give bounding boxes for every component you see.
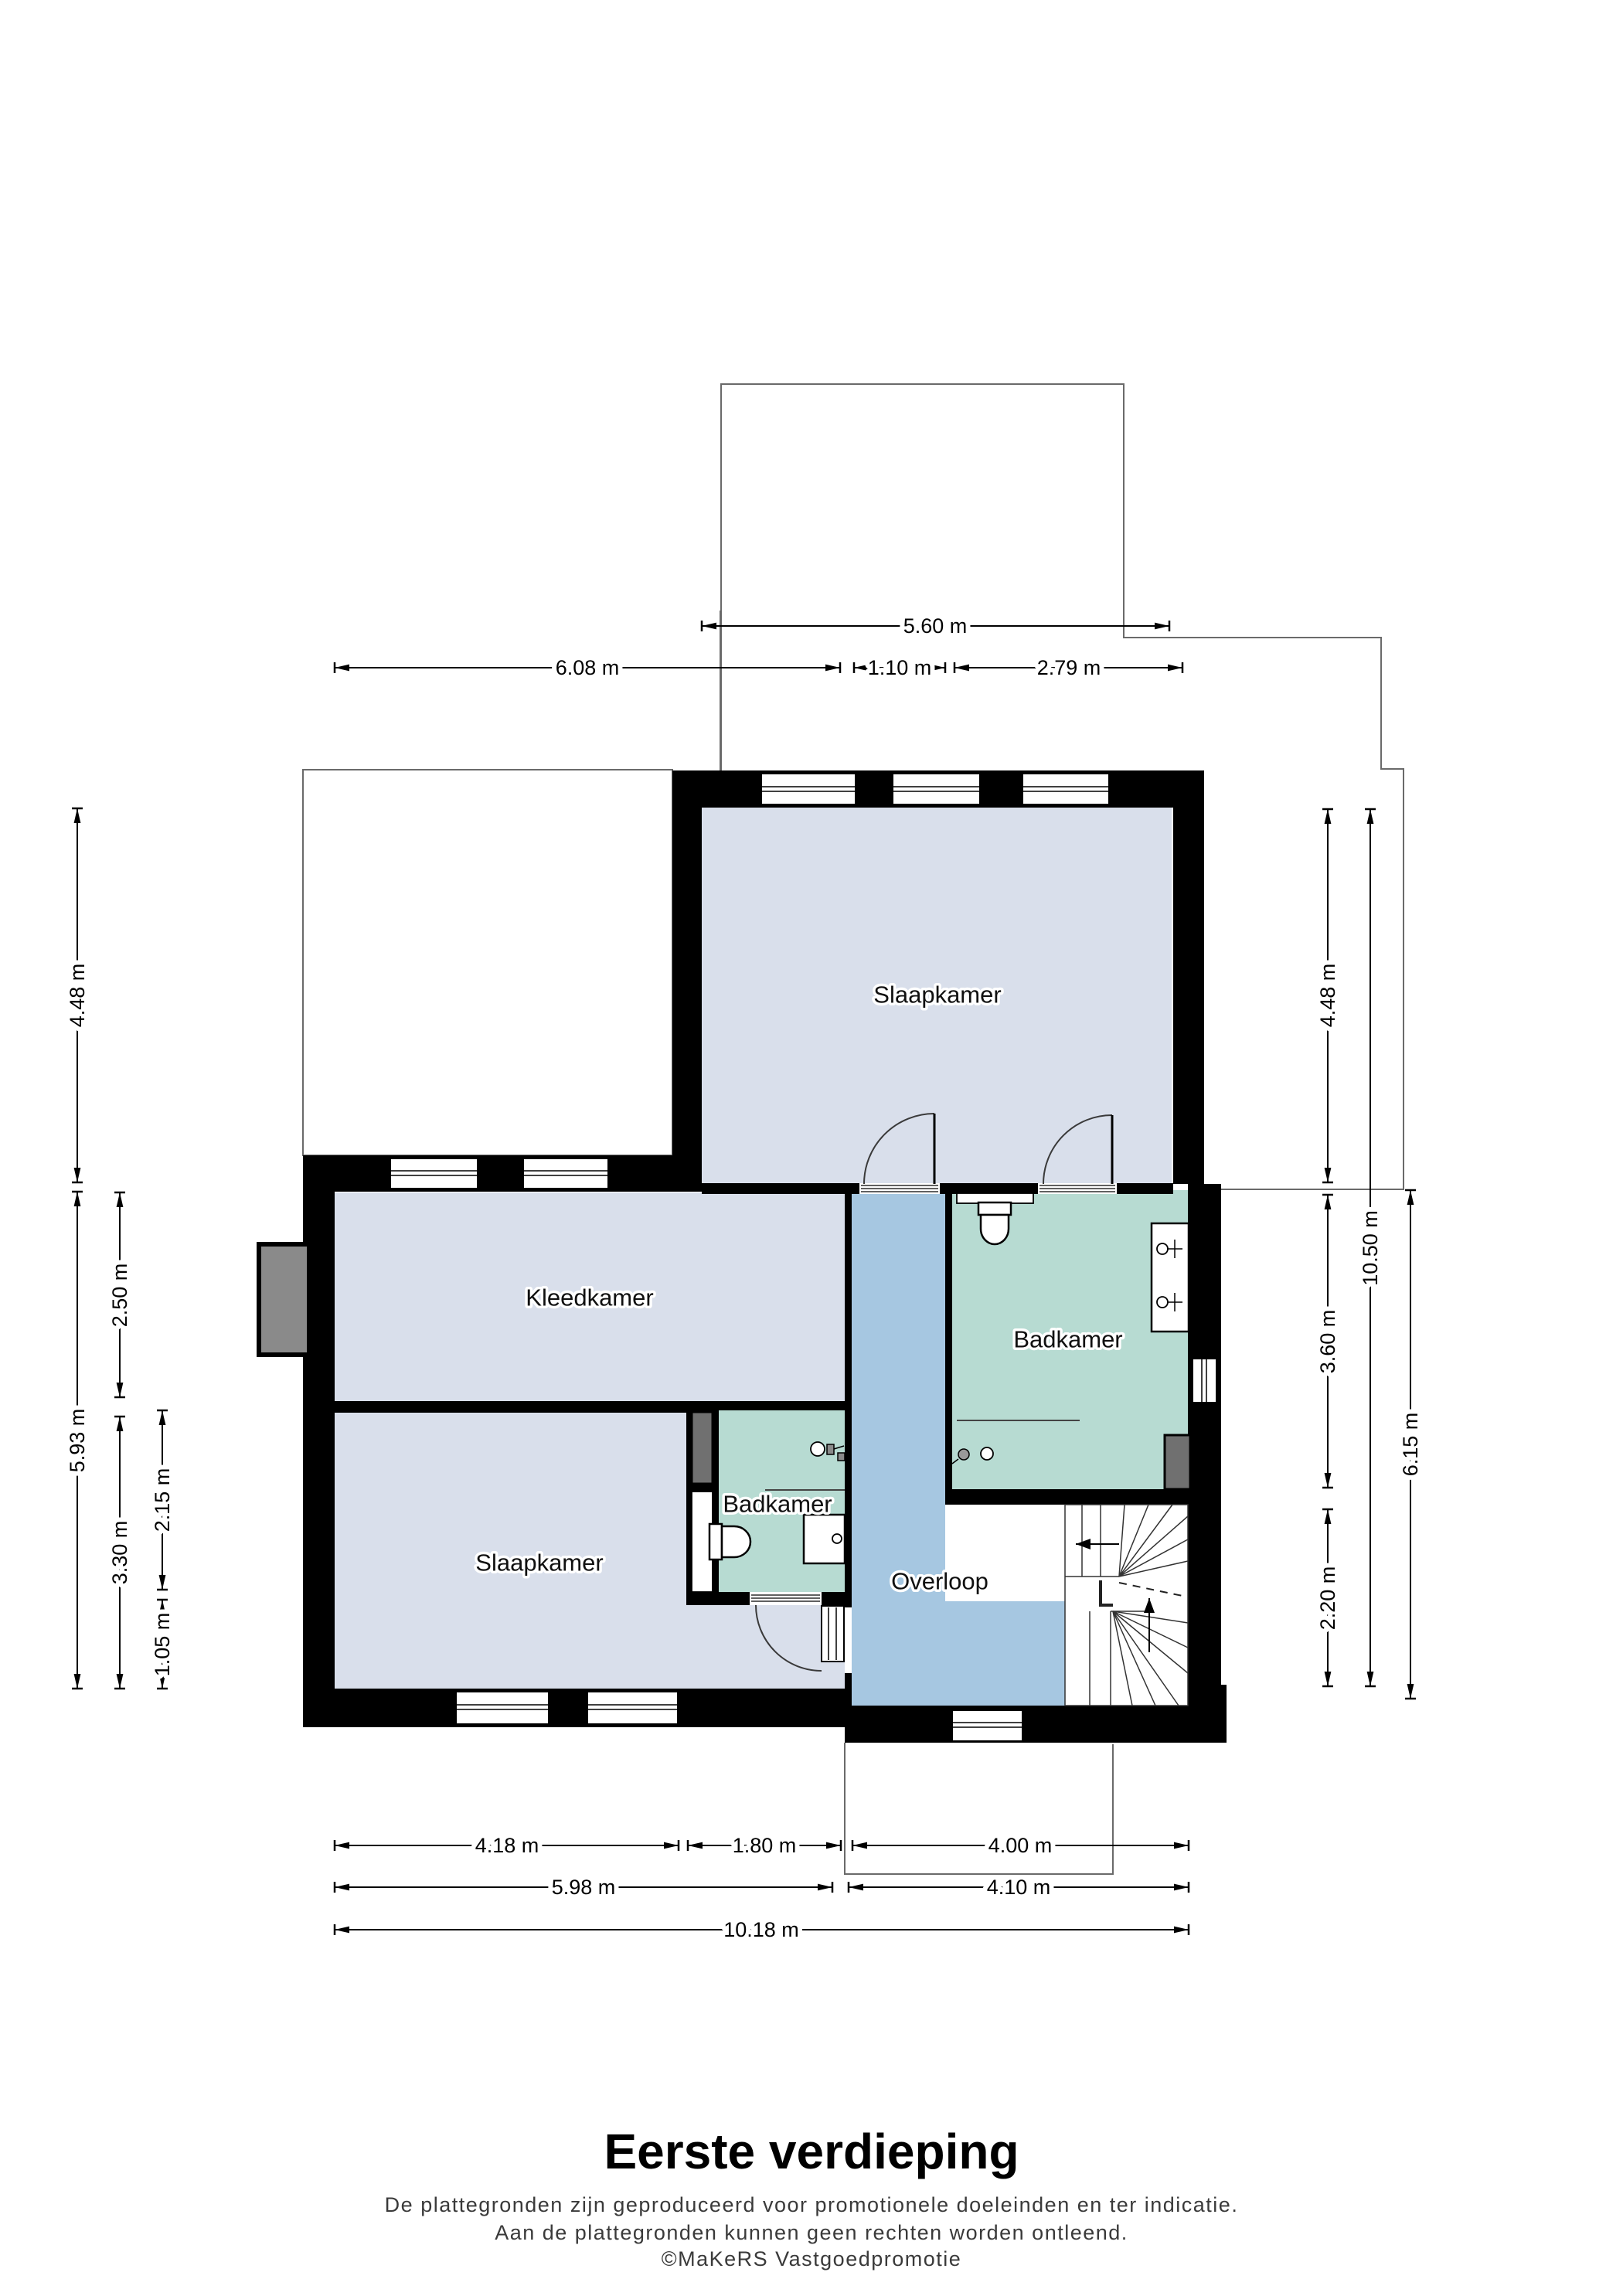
floorplan-drawing: 5.60 m 6.08 m 1.10 m 2.79 m 4.48 m 5.93 … <box>0 0 1623 2296</box>
dim-label: 5.60 m <box>903 614 968 638</box>
roof-void-outline <box>303 770 672 1155</box>
dim-label: 6.08 m <box>556 656 620 679</box>
window-icon <box>1022 774 1109 804</box>
dim-label: 4.00 m <box>988 1834 1053 1857</box>
window-icon <box>587 1692 678 1724</box>
dim-label: 10.50 m <box>1359 1210 1382 1286</box>
room-fills <box>335 808 1188 1708</box>
dimensions-bottom: 4.18 m 1.80 m 4.00 m 5.98 m 4.10 m 10.18… <box>335 1834 1189 1941</box>
window-icon <box>1193 1359 1216 1403</box>
dim-label: 4.18 m <box>475 1834 539 1857</box>
door-sill <box>1038 1183 1117 1194</box>
disclaimer-line-1: De plattegronden zijn geproduceerd voor … <box>385 2193 1239 2216</box>
dim-label: 4.48 m <box>66 964 89 1028</box>
dim-label: 1.10 m <box>868 656 932 679</box>
window-icon <box>761 774 856 804</box>
room-label-kleedkamer: Kleedkamer <box>526 1284 653 1311</box>
dim-label: 1.05 m <box>151 1613 174 1677</box>
window-icon <box>523 1158 608 1189</box>
extension-bracket <box>845 1743 1113 1874</box>
duct-block-bathroom <box>1165 1435 1190 1489</box>
duct-block <box>692 1412 713 1484</box>
dim-label: 4.10 m <box>987 1876 1051 1899</box>
page-title: Eerste verdieping <box>604 2124 1019 2179</box>
room-label-badkamer-klein: Badkamer <box>723 1491 832 1518</box>
room-label-slaapkamer-onder: Slaapkamer <box>475 1549 603 1577</box>
window-icon <box>456 1692 549 1724</box>
toilet-icon <box>978 1202 1011 1244</box>
dimensions-right: 4.48 m 3.60 m 2.20 m 10.50 m 6.15 m <box>1316 809 1422 1699</box>
door-sill <box>859 1183 940 1194</box>
chimney-block <box>259 1244 309 1355</box>
dim-label: 10.18 m <box>723 1918 799 1941</box>
room-label-overloop: Overloop <box>891 1568 988 1595</box>
dim-label: 2.15 m <box>151 1468 174 1532</box>
sink-icon <box>804 1515 845 1563</box>
dim-label: 5.93 m <box>66 1409 89 1473</box>
dim-label: 3.30 m <box>108 1521 131 1585</box>
dimensions-left: 4.48 m 5.93 m 2.50 m 3.30 m 2.15 m 1.05 … <box>66 808 174 1689</box>
dimensions-top: 5.60 m 6.08 m 1.10 m 2.79 m <box>335 611 1182 770</box>
dim-label: 1.80 m <box>733 1834 797 1857</box>
dim-label: 2.20 m <box>1316 1566 1339 1631</box>
floorplan-page: 5.60 m 6.08 m 1.10 m 2.79 m 4.48 m 5.93 … <box>0 0 1623 2296</box>
dim-label: 2.79 m <box>1037 656 1101 679</box>
dim-label: 6.15 m <box>1399 1413 1422 1477</box>
staircase <box>1065 1505 1188 1706</box>
room-label-badkamer-groot: Badkamer <box>1013 1326 1122 1353</box>
window-icon <box>893 774 980 804</box>
toilet-icon <box>709 1524 750 1560</box>
disclaimer-line-2: Aan de plattegronden kunnen geen rechten… <box>495 2221 1128 2244</box>
dim-label: 4.48 m <box>1316 964 1339 1028</box>
dim-label: 5.98 m <box>552 1876 616 1899</box>
door-sill <box>750 1592 822 1605</box>
window-icon <box>390 1158 478 1189</box>
window-icon <box>952 1710 1022 1741</box>
credit-line: ©MaKeRS Vastgoedpromotie <box>662 2247 962 2270</box>
dim-label: 3.60 m <box>1316 1310 1339 1374</box>
dim-label: 2.50 m <box>108 1264 131 1328</box>
room-label-slaapkamer-boven: Slaapkamer <box>873 981 1001 1009</box>
vanity-double-sink-icon <box>1152 1223 1189 1332</box>
